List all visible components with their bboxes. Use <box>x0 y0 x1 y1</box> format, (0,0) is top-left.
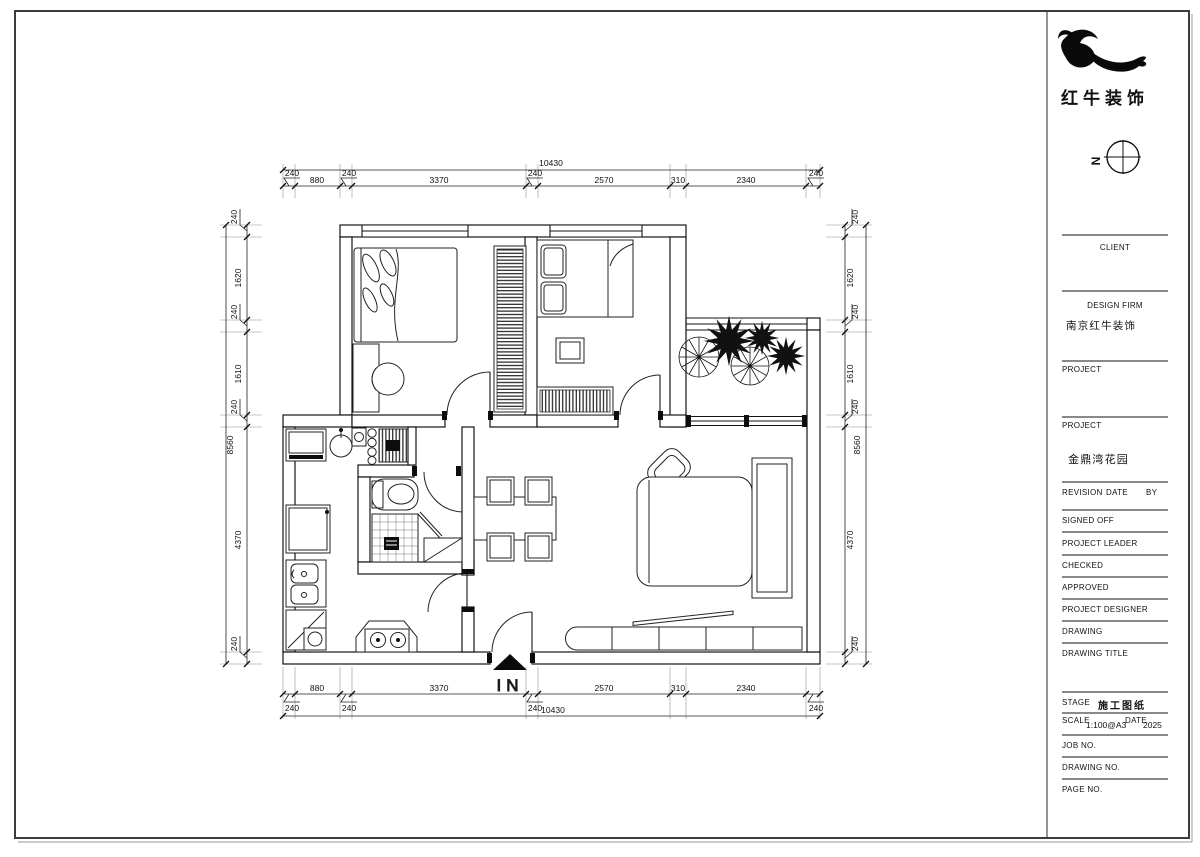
washing-machine <box>286 429 326 461</box>
dim-label: 4370 <box>845 530 855 549</box>
dim-label: 880 <box>310 683 324 693</box>
single-bed <box>537 240 633 317</box>
dim-label: 1610 <box>233 364 243 383</box>
titleblock-project-designer-label: PROJECT DESIGNER <box>1062 605 1148 614</box>
titleblock-revision-label: REVISION <box>1062 488 1103 497</box>
dim-label: 240 <box>342 703 356 713</box>
dim-label: 880 <box>310 175 324 185</box>
dim-label: 240 <box>809 703 823 713</box>
counter-appliance <box>379 429 408 462</box>
dim-label: 2570 <box>595 175 614 185</box>
dim-label: 8560 <box>225 435 235 454</box>
titleblock-project-value: 金鼎湾花园 <box>1068 452 1129 466</box>
wardrobe-bedroom1 <box>494 246 526 412</box>
kitchen-sink <box>286 560 326 607</box>
titleblock-job-no-label: JOB NO. <box>1062 741 1096 750</box>
titleblock-by-label: BY <box>1146 488 1158 497</box>
dim-label: 10430 <box>541 705 565 715</box>
living-bed <box>637 458 792 598</box>
north-label: N <box>1089 157 1103 166</box>
small-sink <box>352 428 366 446</box>
wardrobe-bedroom2 <box>537 387 613 415</box>
dim-label: 2340 <box>737 683 756 693</box>
dim-label: 240 <box>229 210 239 224</box>
titleblock-checked-label: CHECKED <box>1062 561 1103 570</box>
titleblock-approved-label: APPROVED <box>1062 583 1109 592</box>
titleblock-drawing-title-label: DRAWING TITLE <box>1062 649 1128 658</box>
window-bedroom1 <box>362 225 468 237</box>
fridge <box>286 505 330 553</box>
dim-label: 240 <box>850 305 860 319</box>
entrance-label: IN <box>497 676 524 695</box>
dim-label: 1610 <box>845 364 855 383</box>
dim-label: 4370 <box>233 530 243 549</box>
drawing-sheet: 红牛装饰 N CLIENT DESIGN FIRM 南京红牛装饰 PROJECT… <box>0 0 1200 852</box>
brand-name: 红牛装饰 <box>1061 88 1149 108</box>
dim-label: 1620 <box>233 268 243 287</box>
titleblock-drawing-label: DRAWING <box>1062 627 1102 636</box>
tv-console <box>566 627 803 650</box>
dim-label: 240 <box>285 168 299 178</box>
dim-label: 240 <box>229 400 239 414</box>
dim-label: 2340 <box>737 175 756 185</box>
dim-label: 310 <box>671 683 685 693</box>
dim-label: 240 <box>285 703 299 713</box>
titleblock-stage-label: STAGE <box>1062 698 1090 707</box>
titleblock-page-no-label: PAGE NO. <box>1062 785 1102 794</box>
dim-label: 240 <box>528 168 542 178</box>
floor-drain <box>304 628 326 650</box>
dim-label: 240 <box>342 168 356 178</box>
window-bedroom2 <box>550 225 642 237</box>
dim-label: 240 <box>229 637 239 651</box>
dim-label: 10430 <box>539 158 563 168</box>
dim-label: 310 <box>671 175 685 185</box>
dim-label: 240 <box>229 305 239 319</box>
gas-stove <box>356 621 417 652</box>
titleblock-project-label: PROJECT <box>1062 365 1101 374</box>
titleblock-date-value: 2025 <box>1143 720 1162 730</box>
dim-label: 2570 <box>595 683 614 693</box>
window-balcony-rail <box>686 415 807 427</box>
dim-label: 1620 <box>845 268 855 287</box>
titleblock-stage-value: 施工图纸 <box>1098 699 1146 712</box>
dim-label: 240 <box>809 168 823 178</box>
titleblock-client-label: CLIENT <box>1100 243 1130 252</box>
dim-label: 8560 <box>852 435 862 454</box>
double-bed <box>354 248 457 342</box>
titleblock-scale-value: 1:100@A3 <box>1086 720 1127 730</box>
titleblock-date-label: DATE <box>1106 488 1128 497</box>
dim-label: 240 <box>850 400 860 414</box>
desk-chair <box>372 363 404 395</box>
titleblock-project-leader-label: PROJECT LEADER <box>1062 539 1138 548</box>
nightstand <box>556 338 584 363</box>
dim-label: 240 <box>850 637 860 651</box>
dim-label: 240 <box>850 210 860 224</box>
titleblock-project2-label: PROJECT <box>1062 421 1101 430</box>
titleblock-signed-off-label: SIGNED OFF <box>1062 516 1114 525</box>
dim-label: 3370 <box>430 175 449 185</box>
toilet <box>372 479 418 510</box>
dim-label: 3370 <box>430 683 449 693</box>
titleblock-drawing-no-label: DRAWING NO. <box>1062 763 1120 772</box>
plant-icon <box>679 337 719 377</box>
titleblock-design-firm-value: 南京红牛装饰 <box>1066 319 1136 332</box>
titleblock-design-firm-label: DESIGN FIRM <box>1087 301 1143 310</box>
